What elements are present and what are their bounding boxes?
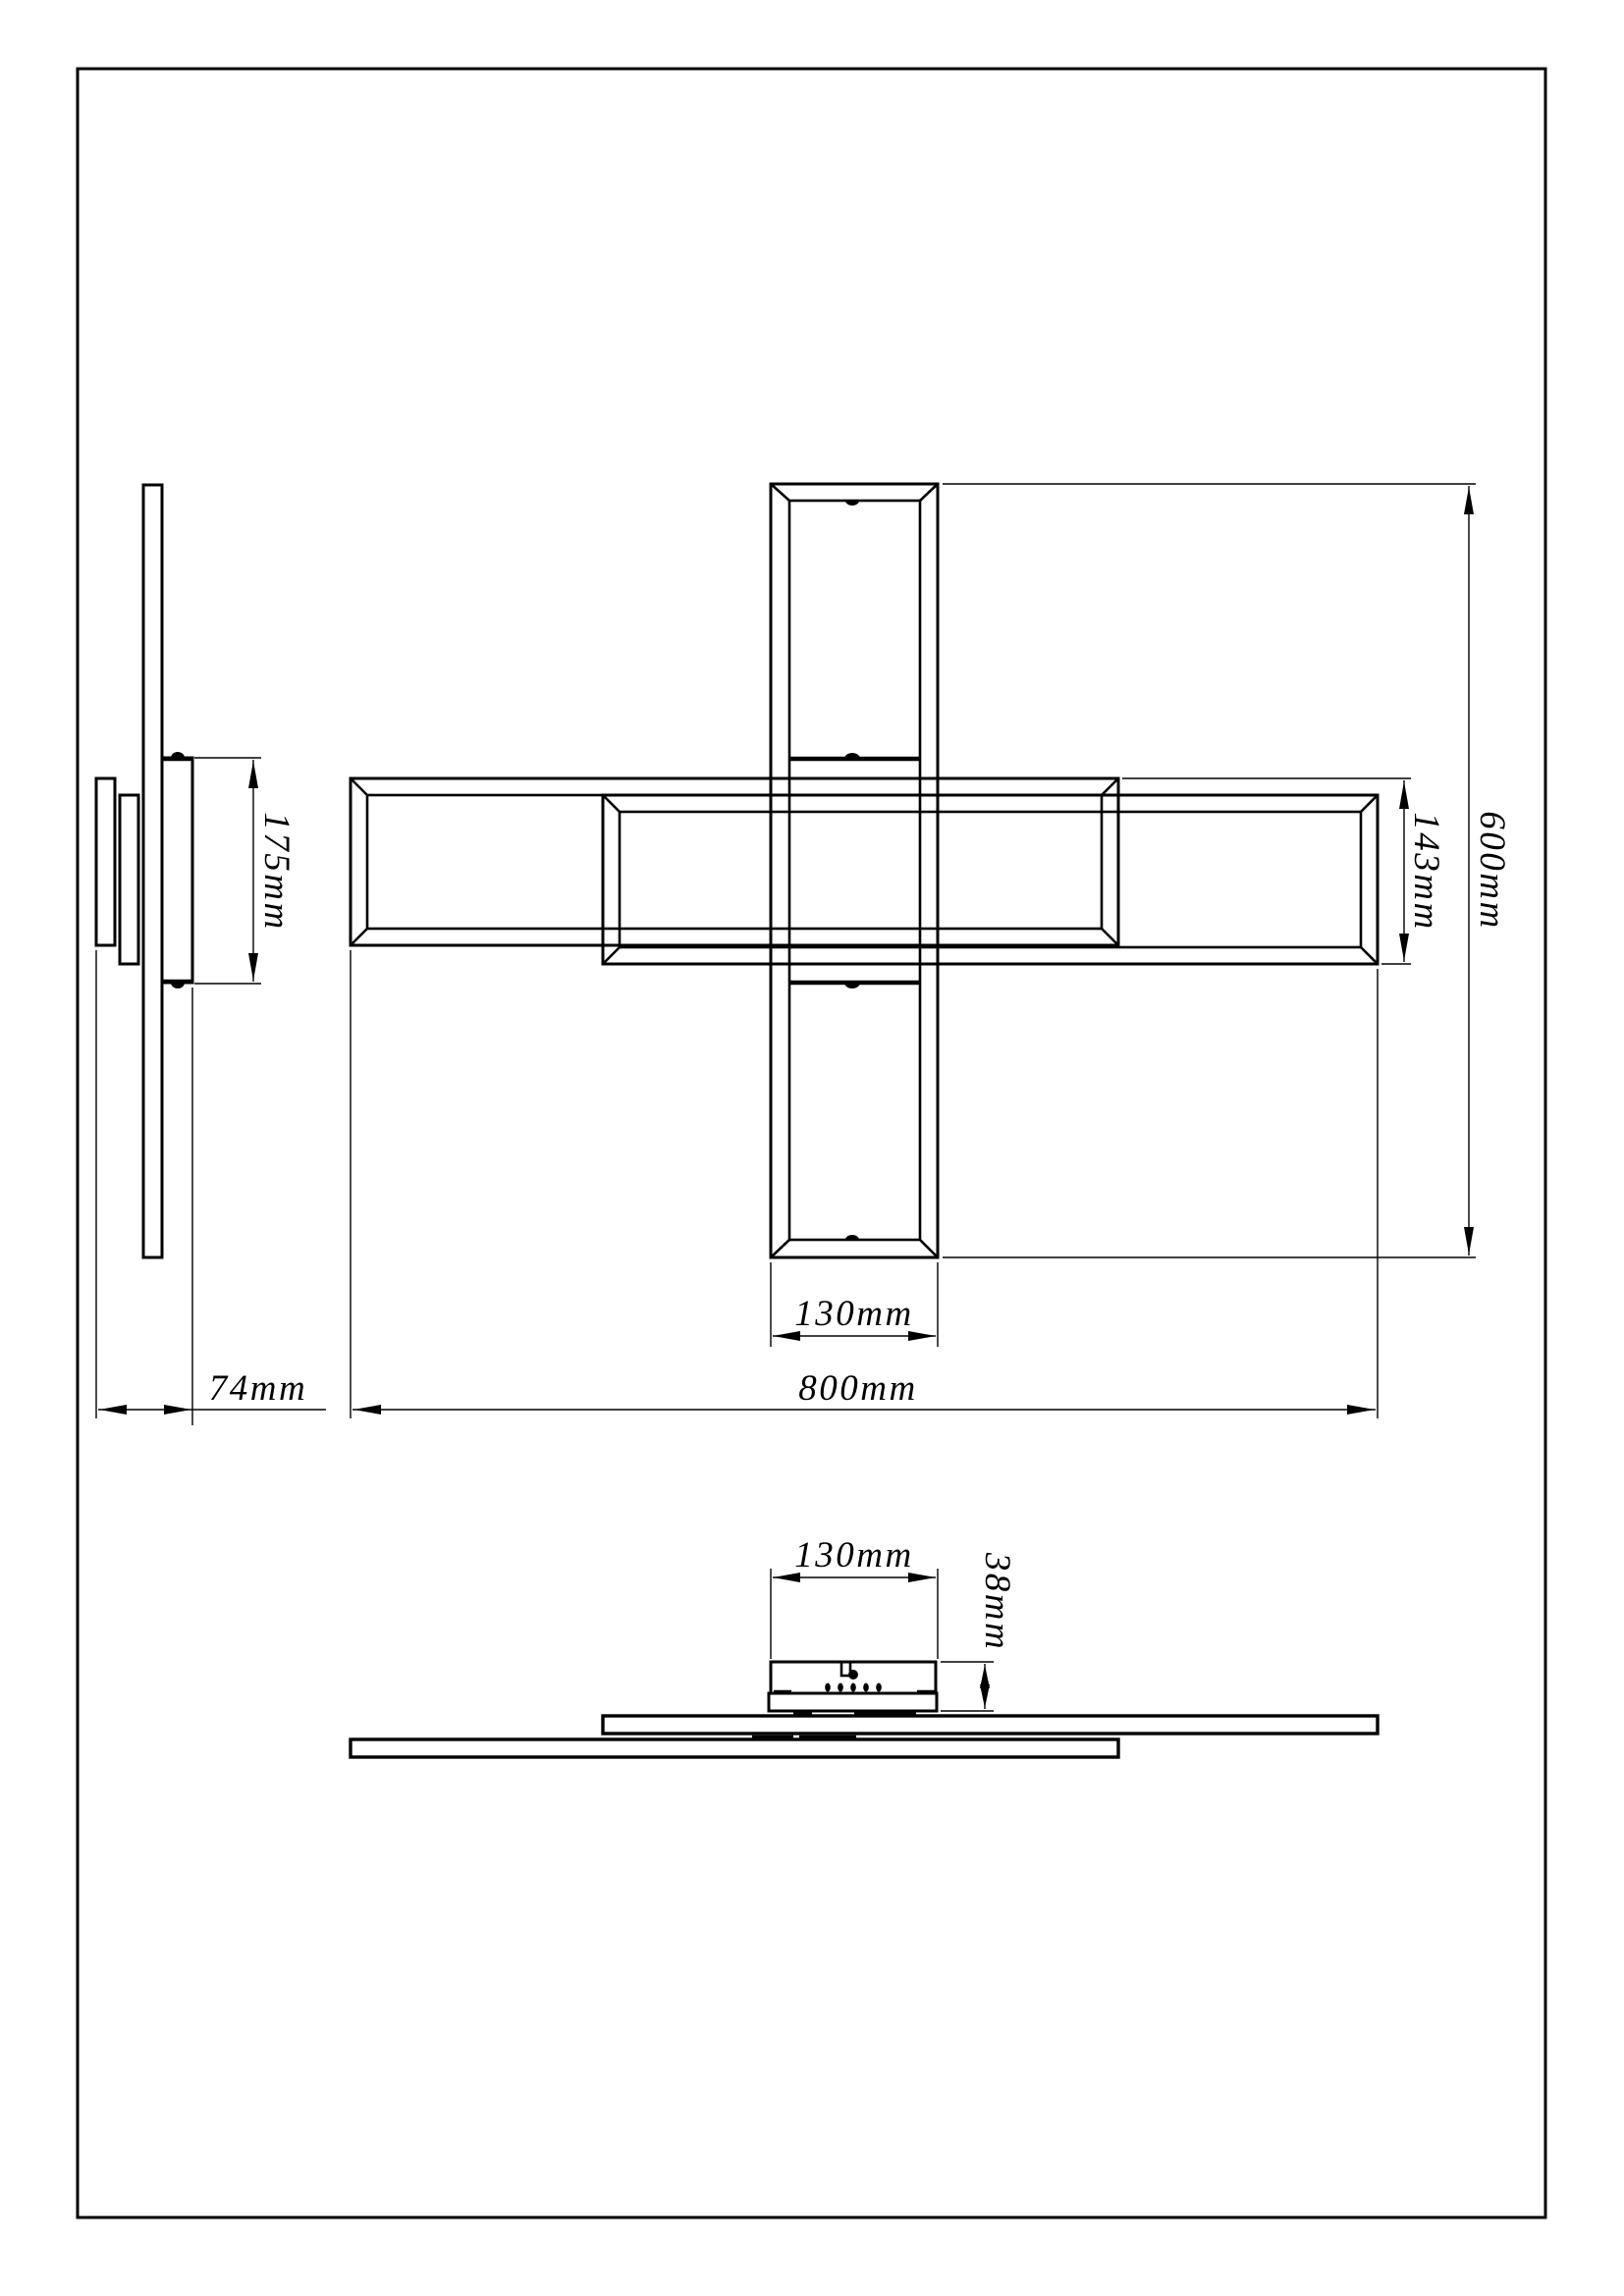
dimension-bottom-canopy-height: 38mm — [941, 1552, 1017, 1711]
dimension-side-depth: 74mm — [96, 950, 326, 1425]
vertical-frame — [771, 484, 938, 1257]
dimension-double-frame-span: 143mm — [1122, 778, 1446, 964]
bottom-canopy-width-label: 130mm — [794, 1535, 913, 1575]
side-depth-label: 74mm — [209, 1368, 307, 1409]
dimension-bar-width: 130mm — [771, 1262, 938, 1347]
side-vertical-frame-bar — [143, 485, 162, 1257]
double-frame-span-label: 143mm — [1406, 812, 1446, 931]
screw-dot — [848, 1670, 858, 1680]
sheet-border — [78, 69, 1545, 2217]
left-frame — [351, 778, 1118, 945]
bottom-canopy — [769, 1662, 937, 1713]
canopy-front — [789, 753, 920, 988]
overall-height-label: 600mm — [1472, 811, 1512, 930]
overall-width-label: 800mm — [798, 1368, 917, 1409]
side-canopy — [162, 752, 192, 988]
side-right-frame-bar — [120, 795, 138, 964]
joint-mark-bottom — [845, 1235, 859, 1240]
bottom-left-frame-bar — [351, 1739, 1118, 1757]
bottom-canopy-height-label: 38mm — [977, 1552, 1017, 1651]
right-frame — [603, 795, 1378, 964]
dimension-overall-width: 800mm — [351, 950, 1378, 1418]
technical-drawing: 600mm 143mm 130mm 800mm 74mm — [0, 0, 1624, 2296]
drawing-sheet: 600mm 143mm 130mm 800mm 74mm — [0, 0, 1624, 2296]
bottom-view — [351, 1662, 1378, 1757]
side-canopy-span-label: 175mm — [256, 812, 297, 931]
side-view — [96, 485, 192, 1257]
dimension-side-canopy-span: 175mm — [194, 758, 297, 984]
front-view — [351, 484, 1378, 1257]
side-left-frame-bar — [96, 778, 115, 945]
bottom-right-frame-bar — [603, 1716, 1378, 1734]
dimension-bottom-canopy-width: 130mm — [771, 1535, 938, 1659]
canopy-base-plate — [769, 1693, 937, 1711]
bar-width-label: 130mm — [794, 1294, 913, 1334]
joint-mark-top — [845, 501, 859, 506]
